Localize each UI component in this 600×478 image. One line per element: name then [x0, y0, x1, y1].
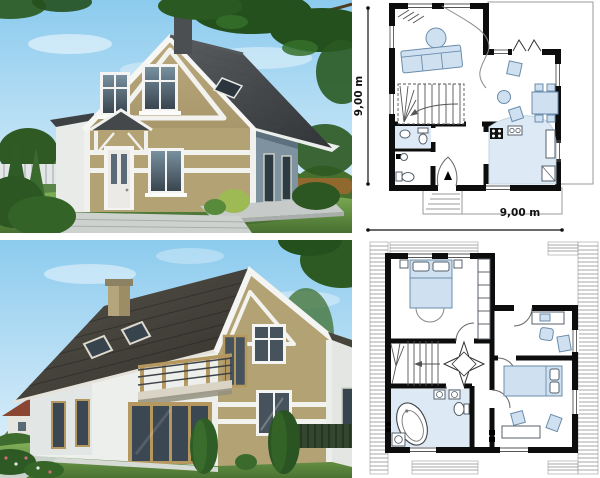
nightstand	[400, 260, 408, 268]
washbasin	[400, 130, 410, 138]
side-window	[264, 154, 274, 202]
pillow	[550, 382, 559, 393]
dining-table	[532, 92, 558, 114]
dim-label-bottom: 9,00 m	[500, 207, 541, 219]
small-sink	[401, 154, 408, 161]
upper-floor-plan	[352, 238, 600, 478]
kitchen	[489, 116, 556, 184]
gable-upper-window	[252, 324, 286, 364]
counter	[546, 130, 555, 158]
side-window	[282, 156, 291, 200]
chimney	[105, 279, 133, 316]
round-chair	[498, 91, 511, 104]
study-door-gap	[514, 304, 532, 312]
nightstand	[454, 260, 462, 268]
ground-floor-plan: 9,00 m 9,00 m	[352, 0, 600, 240]
left-wing-wall	[56, 120, 88, 212]
pillow	[433, 262, 449, 271]
desk-chair	[511, 411, 526, 426]
bathroom	[386, 389, 469, 450]
rear-elevation-photo	[0, 240, 364, 478]
pillow	[550, 369, 559, 380]
ground-window	[145, 148, 187, 197]
pillow	[413, 262, 429, 271]
screenshot-canvas: 9,00 m 9,00 m	[0, 0, 600, 478]
cabinet	[557, 335, 571, 352]
corner-board-right	[250, 126, 256, 212]
desk	[502, 426, 540, 438]
corner-board-left	[84, 126, 90, 212]
toilet	[402, 173, 414, 182]
bathroom	[395, 126, 431, 148]
entrance-door-gap	[438, 184, 456, 192]
stove	[490, 128, 503, 139]
dim-label-left: 9,00 m	[353, 76, 365, 117]
armchair	[507, 61, 522, 76]
stairs	[398, 84, 464, 124]
desk-chair	[539, 327, 554, 341]
washing-machine	[392, 433, 405, 446]
wardrobe	[478, 259, 490, 339]
toilet	[419, 134, 427, 144]
upper-window-left	[97, 72, 133, 119]
upper-window-right	[139, 64, 181, 115]
front-door	[104, 146, 134, 210]
laptop	[540, 314, 550, 321]
front-elevation-photo	[0, 0, 352, 233]
round-rug	[426, 28, 446, 48]
toilet	[454, 403, 464, 416]
